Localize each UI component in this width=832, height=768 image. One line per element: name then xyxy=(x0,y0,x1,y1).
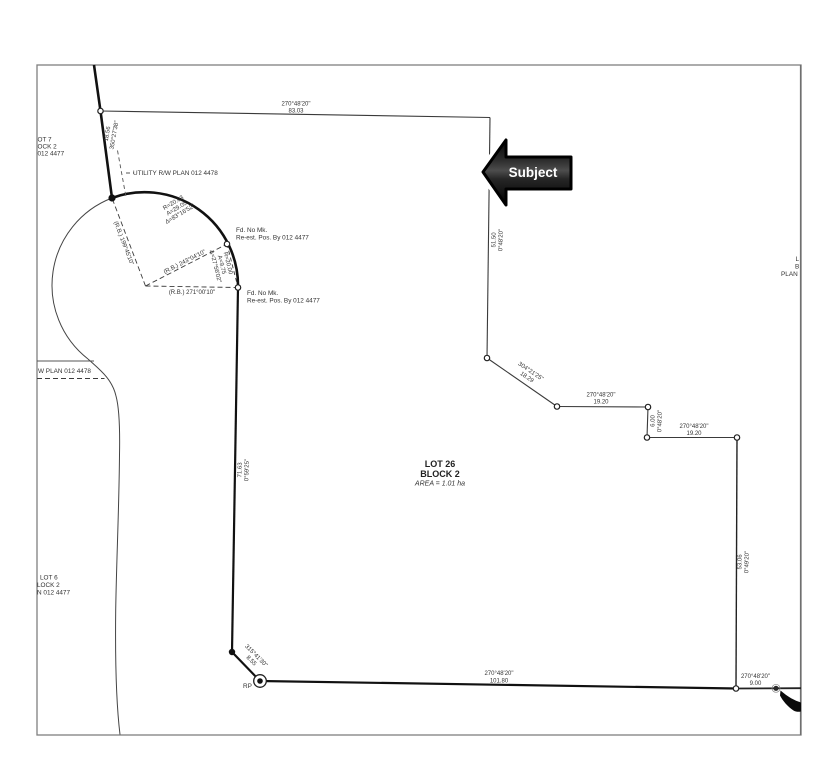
svg-text:N 012 4477: N 012 4477 xyxy=(37,590,70,597)
svg-text:270°48'20": 270°48'20" xyxy=(281,102,310,108)
svg-text:B: B xyxy=(795,264,799,271)
svg-text:71.63: 71.63 xyxy=(237,462,243,478)
svg-text:270°48'20": 270°48'20" xyxy=(484,671,513,677)
svg-text:Fd. No Mk.: Fd. No Mk. xyxy=(236,227,267,234)
svg-text:19.20: 19.20 xyxy=(593,400,609,406)
svg-text:350°27'38": 350°27'38" xyxy=(109,120,120,150)
svg-text:L: L xyxy=(796,256,800,263)
svg-text:BLOCK 2: BLOCK 2 xyxy=(420,469,460,479)
svg-text:UTILITY R/W PLAN 012 4478: UTILITY R/W PLAN 012 4478 xyxy=(133,170,218,177)
svg-text:OCK 2: OCK 2 xyxy=(38,144,58,151)
svg-text:0°48'20": 0°48'20" xyxy=(657,410,663,432)
svg-text:6.00: 6.00 xyxy=(650,414,656,426)
svg-text:101.80: 101.80 xyxy=(490,678,509,684)
svg-text:83.03: 83.03 xyxy=(288,108,304,114)
svg-text:0°48'20": 0°48'20" xyxy=(498,229,504,251)
svg-text:19.20: 19.20 xyxy=(686,431,702,437)
svg-text:51.50: 51.50 xyxy=(491,232,497,248)
svg-text:OT 7: OT 7 xyxy=(38,137,53,144)
svg-text:LOT 6: LOT 6 xyxy=(40,575,58,582)
svg-text:53.06: 53.06 xyxy=(737,554,743,570)
svg-text:270°48'20": 270°48'20" xyxy=(586,393,615,399)
svg-text:Re-est. Pos. By 012 4477: Re-est. Pos. By 012 4477 xyxy=(247,298,320,305)
svg-text:Fd. No Mk.: Fd. No Mk. xyxy=(247,290,278,297)
svg-text:LOT 26: LOT 26 xyxy=(425,459,456,469)
svg-text:(R.B.) 271°00'10": (R.B.) 271°00'10" xyxy=(169,290,215,296)
svg-text:Re-est. Pos. By 012 4477: Re-est. Pos. By 012 4477 xyxy=(236,235,309,242)
svg-text:(R.B.) 199°45'10": (R.B.) 199°45'10" xyxy=(112,221,134,266)
svg-text:9.00: 9.00 xyxy=(750,681,762,687)
svg-text:W PLAN 012 4478: W PLAN 012 4478 xyxy=(38,368,91,375)
svg-text:0°59'25": 0°59'25" xyxy=(244,459,250,481)
svg-text:270°48'20": 270°48'20" xyxy=(741,674,770,680)
svg-text:(R.B.) 243°04'10": (R.B.) 243°04'10" xyxy=(163,249,207,275)
svg-text:012 4477: 012 4477 xyxy=(38,151,65,158)
svg-text:Subject: Subject xyxy=(509,165,558,180)
svg-text:LOCK 2: LOCK 2 xyxy=(37,582,60,589)
svg-text:0°49'20": 0°49'20" xyxy=(744,551,750,573)
svg-text:RP: RP xyxy=(243,683,252,690)
svg-text:270°48'20": 270°48'20" xyxy=(679,424,708,430)
svg-text:PLAN: PLAN xyxy=(781,271,798,278)
svg-text:AREA = 1.01 ha: AREA = 1.01 ha xyxy=(414,481,465,488)
